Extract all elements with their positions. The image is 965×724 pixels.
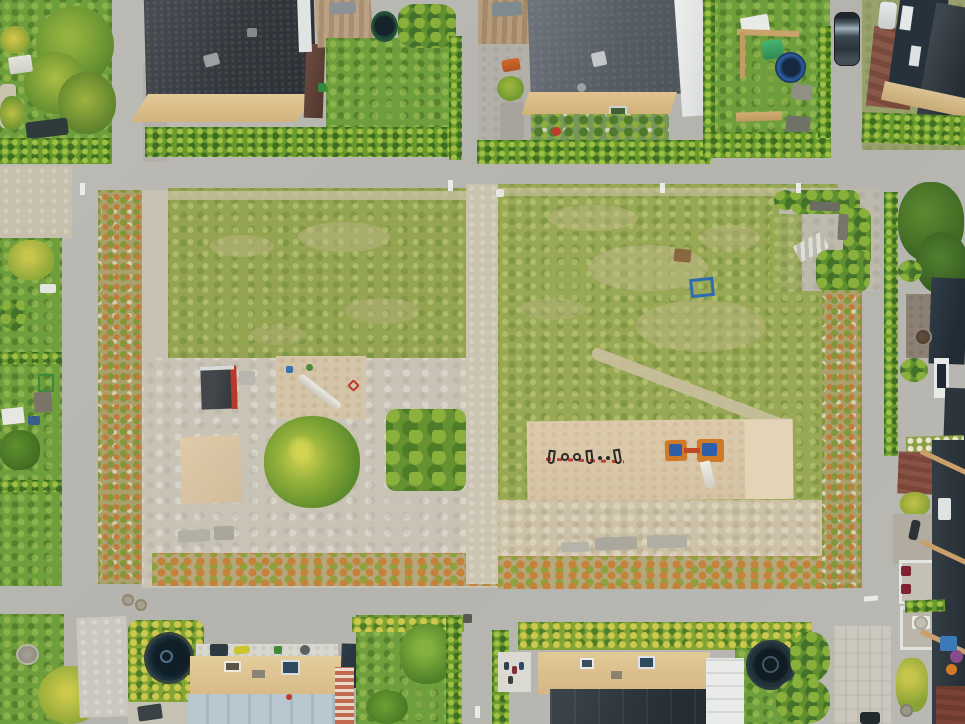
manhole <box>900 704 913 717</box>
picnic-bush <box>774 190 796 210</box>
skylight-flat <box>224 661 241 672</box>
house-roof-tan <box>538 652 710 694</box>
hedge-row <box>905 599 945 612</box>
aerial-photograph <box>0 0 965 724</box>
building-steps <box>239 371 255 385</box>
road-marking <box>796 183 801 193</box>
dirt-patch <box>298 222 390 252</box>
facade-window-dark <box>937 364 946 388</box>
road-marking <box>496 189 504 197</box>
bush <box>900 358 928 382</box>
house-roof-gray <box>527 0 693 99</box>
car-parked-dark <box>834 12 860 66</box>
trampoline-ring <box>762 656 779 673</box>
flower-strip-south-west <box>152 553 498 586</box>
garden-bench-brown <box>673 248 691 263</box>
flower-bush-yellow <box>0 96 24 130</box>
bush <box>898 260 922 282</box>
pool-ladder-ring <box>160 650 173 663</box>
paint-dot <box>606 456 610 460</box>
bush-square <box>386 409 466 491</box>
dirt-patch <box>250 325 306 345</box>
house-roof-tan <box>190 656 342 696</box>
paint-dot <box>598 456 602 460</box>
play-dot-green <box>306 364 313 371</box>
purple-shrub <box>950 650 963 663</box>
pool-blue <box>775 52 806 83</box>
garden-west-plot <box>0 492 62 586</box>
play-bridge-bar <box>684 448 700 453</box>
fire-pit <box>914 328 932 346</box>
roof-window-white <box>938 498 951 520</box>
blue-item <box>28 416 40 425</box>
shed-small <box>33 391 52 412</box>
grass-field-west <box>168 188 466 362</box>
kayak-yellow <box>234 645 251 655</box>
park-bench <box>595 536 637 550</box>
bush-small <box>366 690 408 724</box>
skylight-framed <box>580 658 594 669</box>
sand-box-empty <box>180 435 242 504</box>
car-dark-bottom <box>860 712 880 724</box>
wooden-bench <box>736 111 782 122</box>
picnic-bench-dark <box>810 201 840 211</box>
skylight-open <box>281 660 300 675</box>
garden-goal-frame <box>38 374 54 392</box>
roof-skylight <box>591 51 608 68</box>
park-bench <box>178 529 211 543</box>
brick-court-red <box>936 686 965 724</box>
hedge-row <box>703 132 831 158</box>
stored-boat-dark <box>210 644 228 656</box>
hedge-row <box>862 112 965 146</box>
red-toy <box>552 127 561 136</box>
roof-hatch-blue <box>940 636 957 651</box>
dirt-patch <box>548 205 638 231</box>
gravel-lot-top-left <box>0 166 72 238</box>
dirt-patch <box>210 235 274 257</box>
road-marking <box>475 706 480 718</box>
flower-strip-south-east <box>498 556 838 589</box>
skylight-framed <box>638 656 655 669</box>
park-bench <box>561 542 589 553</box>
hedge-column <box>703 0 715 152</box>
dirt-patch <box>345 298 419 324</box>
hedge-row <box>145 127 457 157</box>
rowhouse-roofline-dark <box>932 440 965 724</box>
white-table <box>1 407 25 425</box>
hedge-column <box>449 36 462 160</box>
bush <box>776 678 830 724</box>
hedge-row <box>477 140 711 164</box>
bush <box>790 632 830 682</box>
deck-furniture <box>330 1 357 15</box>
park-bench <box>647 535 687 549</box>
house-roof-tan-eave <box>131 94 314 122</box>
garden-clutter <box>791 83 813 102</box>
stone-circle <box>16 644 39 665</box>
driveway-concrete <box>76 616 129 718</box>
person <box>512 666 517 674</box>
bush-yellow <box>8 240 54 280</box>
garden-box-green <box>274 646 282 654</box>
person <box>504 662 509 670</box>
patio-cushion-red <box>901 566 911 576</box>
patio-cushion-red <box>901 584 911 594</box>
garden-bench-white <box>40 284 56 293</box>
person <box>508 676 513 684</box>
road-marking <box>660 183 665 193</box>
bush-yellow <box>900 492 930 516</box>
house-roof-charcoal <box>144 0 317 100</box>
house-wing-white <box>706 658 744 724</box>
garden-shed <box>8 54 33 74</box>
white-car <box>878 1 898 30</box>
hedge-column <box>446 617 462 724</box>
park-bench <box>214 526 234 541</box>
hedge-strip-east-road <box>884 192 898 456</box>
pergola-post <box>740 32 745 78</box>
roof-terracotta-striped <box>335 667 354 724</box>
flower-strip-west <box>98 190 142 584</box>
flower-bush-yellow <box>0 26 30 54</box>
sand-panel-light <box>745 420 794 499</box>
roof-hatch <box>252 670 265 678</box>
dirt-patch <box>700 225 760 251</box>
manhole <box>135 599 147 611</box>
paint-ring <box>573 453 581 461</box>
orange-chair <box>946 664 957 675</box>
shrub-border <box>398 4 456 48</box>
tree-highlight <box>286 436 316 462</box>
person <box>519 662 524 670</box>
paint-ring <box>561 453 569 461</box>
house-roof-blue <box>188 694 342 724</box>
bush <box>0 300 26 330</box>
drain-dark <box>463 614 472 623</box>
hedge-column <box>818 26 831 138</box>
green-bin <box>318 83 326 92</box>
hedge-row <box>0 138 112 164</box>
deck-furniture <box>492 1 523 17</box>
house-roof-charcoal-south <box>550 689 724 724</box>
hedge-row <box>0 352 62 364</box>
roof-red-dot <box>286 694 292 700</box>
roof-vent <box>611 671 622 679</box>
road-marking <box>448 180 453 191</box>
bbq-item <box>300 645 310 655</box>
flower-strip-east <box>822 290 862 588</box>
bush-dense <box>0 430 40 470</box>
paint-hook <box>585 450 593 465</box>
dirt-patch <box>520 298 586 320</box>
tower-top-blue <box>669 444 682 456</box>
dirt-patch <box>636 300 766 352</box>
play-dot-blue <box>286 366 293 373</box>
round-bush <box>497 76 524 101</box>
picnic-bench-dark <box>837 214 848 240</box>
tower-top-blue <box>702 443 717 456</box>
playground-tree-large <box>264 416 360 508</box>
rowhouse-roof-navy <box>929 277 965 364</box>
dirt-path-central <box>466 184 498 584</box>
house-wall-white <box>297 0 312 52</box>
flower-bed <box>531 114 669 142</box>
manhole <box>122 594 134 606</box>
path-pale <box>142 190 168 362</box>
hedge-row <box>0 480 62 492</box>
paver-driveway-grid <box>833 626 891 724</box>
house-roof-brown-wing <box>304 44 326 119</box>
roof-vent <box>577 83 586 92</box>
house-roof-tan-eave <box>522 92 677 115</box>
picnic-bush <box>816 250 870 292</box>
trampoline-green <box>371 11 398 42</box>
dirt-margin <box>168 191 466 200</box>
bush-yellow-tall <box>896 658 928 712</box>
manhole-pale <box>914 616 928 630</box>
soccer-goal-frame <box>689 277 715 298</box>
roof-vent <box>247 28 257 37</box>
road-marking <box>80 183 85 195</box>
